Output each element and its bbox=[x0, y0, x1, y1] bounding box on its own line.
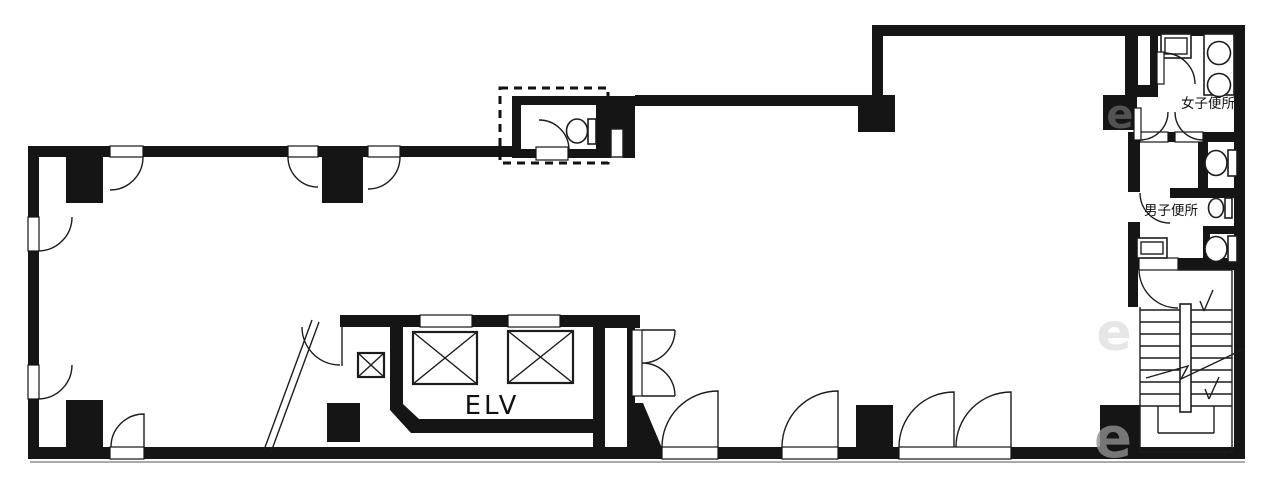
stair-door-arc bbox=[1139, 269, 1178, 308]
elevator-shaft-1 bbox=[413, 332, 477, 384]
sink-basin bbox=[1208, 74, 1231, 97]
door-arc bbox=[899, 392, 954, 447]
door-arc bbox=[956, 392, 1011, 447]
door-leaf bbox=[1134, 108, 1141, 140]
column bbox=[858, 95, 895, 132]
elevator-label: ELV bbox=[465, 391, 520, 421]
toilet bbox=[567, 119, 597, 144]
door-swings bbox=[38, 157, 1011, 447]
sink-basin bbox=[1208, 42, 1231, 65]
wash-counter bbox=[1204, 34, 1234, 97]
stairwell bbox=[1128, 262, 1244, 452]
toilet-block: 女子便所 男子便所 bbox=[1125, 26, 1245, 270]
vanity-sink bbox=[1161, 34, 1191, 58]
elevator-shaft-2 bbox=[508, 331, 573, 383]
door-arc bbox=[288, 157, 318, 187]
lobby-double-doors bbox=[632, 330, 675, 396]
door-arc bbox=[368, 157, 400, 189]
door-arc bbox=[38, 365, 72, 399]
door-arc bbox=[38, 217, 72, 251]
column bbox=[856, 405, 893, 447]
womens-toilet-label: 女子便所 bbox=[1181, 95, 1235, 112]
column bbox=[322, 146, 363, 203]
watermark: e e e bbox=[1094, 92, 1134, 471]
watermark-letter: e bbox=[1106, 92, 1133, 138]
elevator-opening bbox=[508, 315, 560, 327]
elevator-opening bbox=[420, 315, 472, 327]
dashed-wc-room bbox=[500, 88, 635, 163]
urinal bbox=[1209, 198, 1233, 218]
door-arc bbox=[782, 391, 838, 447]
door-leaf bbox=[536, 147, 568, 160]
toilet bbox=[1205, 236, 1237, 262]
diagonal-wall bbox=[264, 320, 319, 452]
elevator-core: ELV bbox=[264, 315, 675, 452]
shaft-column bbox=[327, 403, 360, 442]
column bbox=[66, 400, 103, 447]
door-arc bbox=[110, 157, 143, 190]
door-arc bbox=[111, 414, 144, 447]
mens-toilet-label: 男子便所 bbox=[1144, 203, 1198, 219]
duct-box bbox=[358, 353, 384, 377]
duct-notch bbox=[611, 129, 623, 157]
floor-plan: ELV bbox=[0, 0, 1272, 484]
toilet bbox=[1205, 150, 1237, 176]
watermark-letter: e bbox=[1096, 303, 1131, 363]
door-arc bbox=[662, 391, 718, 447]
door-arc bbox=[539, 120, 569, 150]
door-leaf bbox=[1157, 52, 1164, 84]
watermark-letter: e bbox=[1094, 406, 1132, 471]
hand-sink bbox=[1137, 238, 1167, 258]
floor-plan-drawing: ELV bbox=[0, 0, 1272, 484]
womens-toilet-room: 女子便所 bbox=[1134, 34, 1237, 176]
column bbox=[66, 146, 103, 203]
stair-rail bbox=[1180, 304, 1191, 412]
